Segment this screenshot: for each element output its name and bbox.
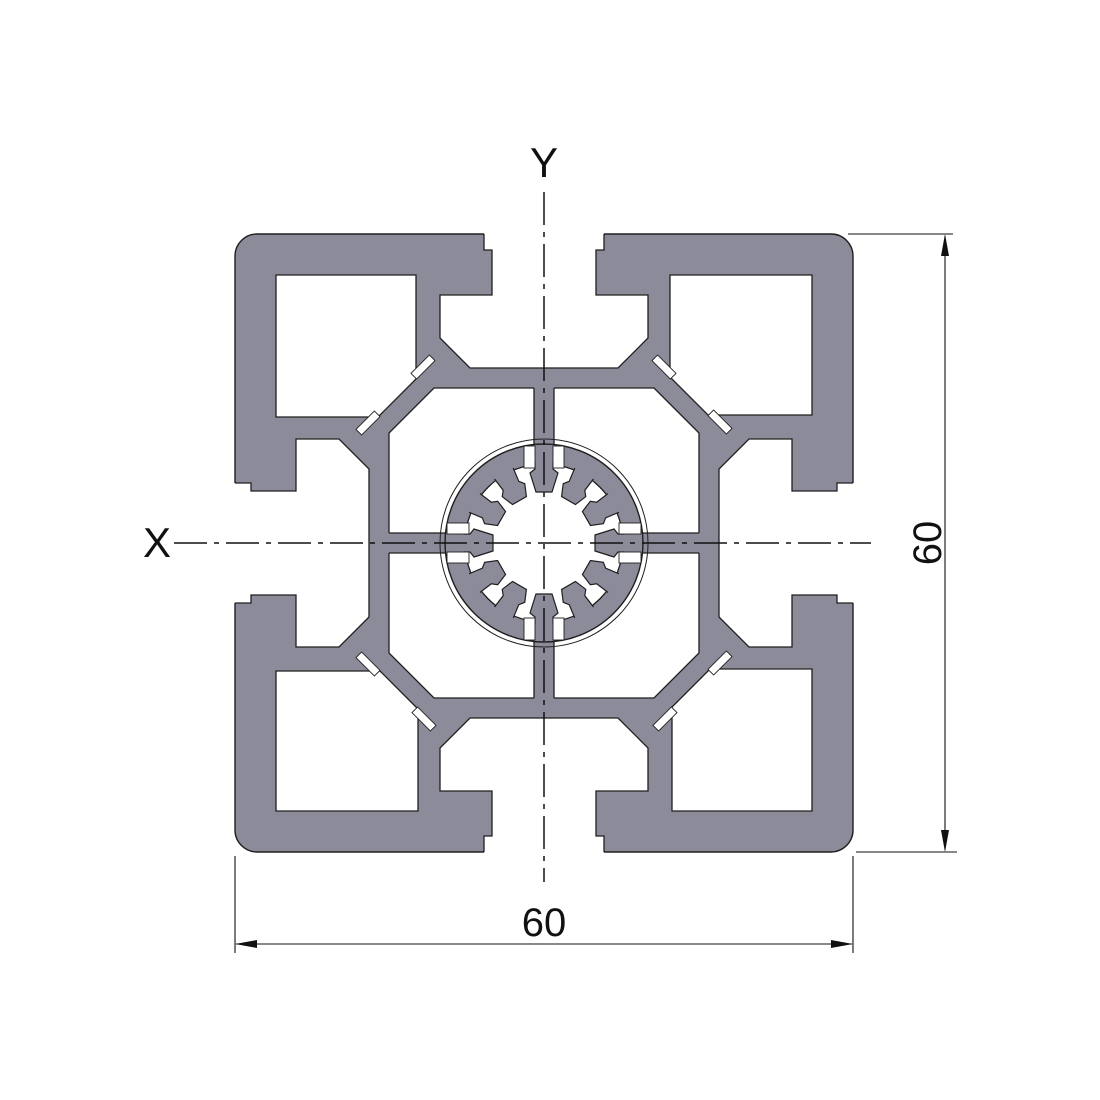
profile-section-drawing: 60 60 Y X <box>0 0 1100 1100</box>
axis-label-x: X <box>143 519 171 566</box>
drawing-canvas: 60 60 Y X <box>0 0 1100 1100</box>
dim-height-value: 60 <box>906 521 950 566</box>
arrowhead-left <box>235 940 257 948</box>
dim-width-value: 60 <box>522 901 567 945</box>
arrowhead-up <box>941 234 949 256</box>
arrowhead-right <box>831 940 853 948</box>
axis-label-y: Y <box>530 139 558 186</box>
arrowhead-down <box>941 830 949 852</box>
